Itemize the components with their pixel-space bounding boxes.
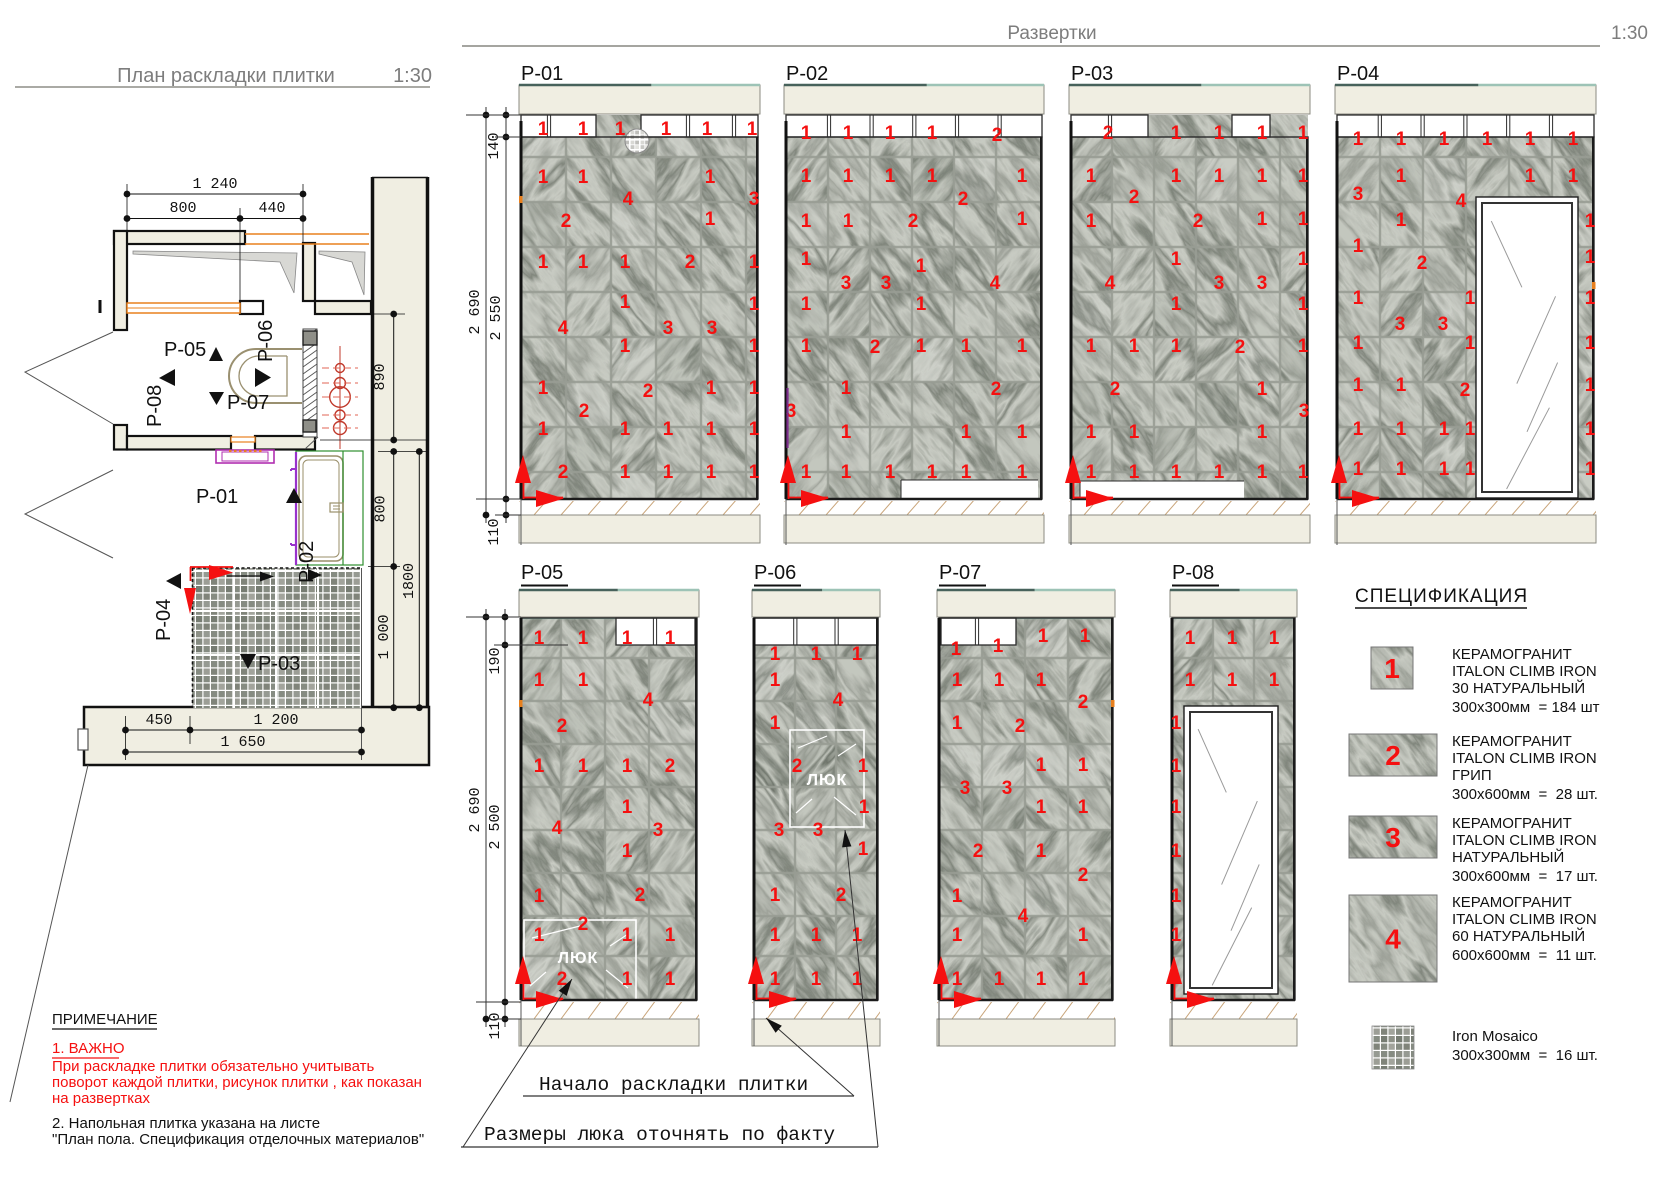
svg-text:60 НАТУРАЛЬНЫЙ: 60 НАТУРАЛЬНЫЙ [1452,927,1585,945]
svg-text:1: 1 [801,294,812,315]
svg-text:КЕРАМОГРАНИТ: КЕРАМОГРАНИТ [1452,894,1572,911]
svg-text:1: 1 [1465,419,1476,440]
svg-text:P-03: P-03 [258,653,300,675]
svg-text:1: 1 [1171,756,1182,777]
svg-text:1: 1 [749,419,760,440]
svg-text:890: 890 [372,363,389,390]
svg-text:Размеры люка оточнять по факту: Размеры люка оточнять по факту [484,1124,835,1146]
svg-text:1: 1 [749,336,760,357]
svg-text:2: 2 [973,841,984,862]
svg-text:2: 2 [1103,123,1114,144]
svg-text:2: 2 [836,885,847,906]
svg-text:2: 2 [1129,187,1140,208]
svg-text:1: 1 [622,841,633,862]
svg-text:1: 1 [1568,166,1579,187]
svg-text:2: 2 [1417,253,1428,274]
svg-text:1: 1 [665,969,676,990]
svg-text:1: 1 [1036,841,1047,862]
svg-text:1: 1 [952,969,963,990]
svg-text:Развертки: Развертки [1007,23,1096,44]
svg-text:1: 1 [1171,249,1182,270]
svg-text:1: 1 [1185,670,1196,691]
svg-text:1: 1 [1129,462,1140,483]
svg-text:1: 1 [1585,288,1596,309]
svg-text:КЕРАМОГРАНИТ: КЕРАМОГРАНИТ [1452,646,1572,663]
svg-text:1: 1 [1017,209,1028,230]
svg-text:4: 4 [623,189,634,210]
svg-text:1: 1 [1038,626,1049,647]
svg-text:1800: 1800 [401,563,418,599]
svg-text:1: 1 [841,378,852,399]
svg-text:ITALON CLIMB IRON: ITALON CLIMB IRON [1452,750,1597,767]
svg-text:1: 1 [578,628,589,649]
svg-text:3: 3 [1299,401,1310,422]
svg-text:1: 1 [961,462,972,483]
svg-text:1: 1 [622,925,633,946]
svg-text:2: 2 [908,211,919,232]
svg-text:2: 2 [579,401,590,422]
svg-text:КЕРАМОГРАНИТ: КЕРАМОГРАНИТ [1452,815,1572,832]
svg-text:P-07: P-07 [227,392,269,414]
svg-text:1: 1 [1017,166,1028,187]
svg-text:1: 1 [1086,336,1097,357]
svg-text:1: 1 [885,123,896,144]
svg-text:1: 1 [1525,129,1536,150]
svg-text:1: 1 [927,123,938,144]
svg-text:2: 2 [561,211,572,232]
svg-text:4: 4 [990,273,1001,294]
svg-text:30 НАТУРАЛЬНЫЙ: 30 НАТУРАЛЬНЫЙ [1452,679,1585,697]
svg-text:2: 2 [665,756,676,777]
svg-text:440: 440 [258,200,285,217]
svg-text:1: 1 [1465,288,1476,309]
svg-text:1: 1 [1396,210,1407,231]
svg-text:1: 1 [578,670,589,691]
svg-text:3: 3 [1385,822,1401,853]
svg-text:1: 1 [749,252,760,273]
svg-text:1: 1 [747,119,758,140]
svg-text:1: 1 [1171,841,1182,862]
svg-text:1: 1 [1171,713,1182,734]
svg-text:1: 1 [1298,166,1309,187]
svg-text:ITALON CLIMB IRON: ITALON CLIMB IRON [1452,832,1597,849]
svg-text:3: 3 [1257,273,1268,294]
svg-text:1: 1 [852,644,863,665]
svg-text:2: 2 [1015,716,1026,737]
svg-text:P-01: P-01 [196,486,238,508]
svg-text:1: 1 [1036,670,1047,691]
svg-text:P-01: P-01 [521,63,563,85]
svg-text:3: 3 [841,273,852,294]
svg-text:1: 1 [578,119,589,140]
svg-text:1: 1 [1080,626,1091,647]
svg-text:1: 1 [578,167,589,188]
svg-text:2: 2 [635,885,646,906]
svg-text:1: 1 [770,713,781,734]
svg-text:1: 1 [952,925,963,946]
svg-text:1: 1 [1353,375,1364,396]
svg-text:1: 1 [534,925,545,946]
svg-text:1: 1 [1086,422,1097,443]
svg-text:1: 1 [811,969,822,990]
svg-text:1: 1 [770,969,781,990]
svg-text:1: 1 [1585,333,1596,354]
svg-text:450: 450 [145,712,172,729]
svg-text:1: 1 [952,886,963,907]
svg-text:P-02: P-02 [786,63,828,85]
svg-text:2: 2 [558,462,569,483]
svg-text:110: 110 [486,518,503,545]
svg-text:ПРИМЕЧАНИЕ: ПРИМЕЧАНИЕ [52,1011,158,1028]
svg-text:3: 3 [1438,314,1449,335]
svg-text:600х600мм = 11 шт.: 600х600мм = 11 шт. [1452,947,1597,964]
svg-text:1: 1 [993,636,1004,657]
svg-text:ГРИП: ГРИП [1452,767,1492,784]
svg-text:1: 1 [801,249,812,270]
svg-text:1: 1 [1439,459,1450,480]
svg-text:300х300мм = 16 шт.: 300х300мм = 16 шт. [1452,1047,1598,1064]
svg-text:800: 800 [169,200,196,217]
svg-text:1: 1 [1396,129,1407,150]
svg-text:1: 1 [1585,459,1596,480]
svg-text:4: 4 [552,818,563,839]
svg-text:1: 1 [538,119,549,140]
svg-text:1: 1 [706,462,717,483]
svg-text:2: 2 [1078,692,1089,713]
svg-text:P-06: P-06 [754,562,796,584]
svg-text:КЕРАМОГРАНИТ: КЕРАМОГРАНИТ [1452,733,1572,750]
svg-text:1: 1 [770,670,781,691]
svg-text:1: 1 [1078,797,1089,818]
svg-text:1: 1 [749,378,760,399]
svg-text:"План пола. Спецификация отдел: "План пола. Спецификация отделочных мате… [52,1131,424,1148]
svg-text:2: 2 [1235,337,1246,358]
svg-text:1: 1 [706,419,717,440]
svg-text:2: 2 [578,914,589,935]
svg-text:1: 1 [1171,886,1182,907]
svg-text:1: 1 [885,166,896,187]
svg-text:3: 3 [1002,778,1013,799]
svg-text:1: 1 [951,639,962,660]
svg-text:P-06: P-06 [255,320,277,362]
svg-text:2: 2 [991,379,1002,400]
svg-text:1: 1 [1353,288,1364,309]
svg-text:1: 1 [1129,422,1140,443]
svg-text:1: 1 [811,925,822,946]
svg-text:P-04: P-04 [1337,63,1379,85]
svg-text:1: 1 [859,797,870,818]
svg-text:1: 1 [622,797,633,818]
svg-text:3: 3 [774,820,785,841]
svg-text:1: 1 [1214,123,1225,144]
svg-text:1:30: 1:30 [393,65,432,87]
svg-text:3: 3 [881,273,892,294]
svg-text:1: 1 [858,839,869,860]
svg-text:1: 1 [1396,375,1407,396]
svg-text:1: 1 [622,628,633,649]
svg-text:2. Напольная плитка указана на: 2. Напольная плитка указана на листе [52,1115,320,1132]
svg-text:ЛЮК: ЛЮК [558,950,599,967]
svg-text:4: 4 [1105,273,1116,294]
svg-text:1: 1 [843,211,854,232]
svg-text:ITALON CLIMB IRON: ITALON CLIMB IRON [1452,911,1597,928]
svg-text:1: 1 [705,167,716,188]
svg-text:1: 1 [811,644,822,665]
svg-text:1: 1 [841,422,852,443]
svg-text:3: 3 [1214,273,1225,294]
svg-text:P-07: P-07 [939,562,981,584]
svg-text:1: 1 [927,462,938,483]
svg-text:1: 1 [661,119,672,140]
svg-text:1 200: 1 200 [253,712,298,729]
svg-text:1: 1 [1036,797,1047,818]
svg-text:300х600мм = 28 шт.: 300х600мм = 28 шт. [1452,786,1598,803]
svg-text:1: 1 [1353,419,1364,440]
svg-text:1: 1 [916,336,927,357]
svg-text:1: 1 [801,123,812,144]
svg-text:1: 1 [1017,336,1028,357]
svg-text:1: 1 [1465,333,1476,354]
svg-text:1: 1 [1214,462,1225,483]
svg-text:1: 1 [1214,166,1225,187]
svg-text:1: 1 [1036,755,1047,776]
svg-text:1: 1 [1298,462,1309,483]
svg-text:4: 4 [1018,906,1029,927]
svg-text:2 550: 2 550 [488,295,505,340]
svg-text:2: 2 [557,716,568,737]
svg-text:1: 1 [1396,166,1407,187]
svg-text:1: 1 [1078,925,1089,946]
svg-text:1: 1 [801,211,812,232]
svg-text:1: 1 [885,462,896,483]
svg-text:1: 1 [1353,129,1364,150]
svg-text:1: 1 [916,294,927,315]
svg-text:3: 3 [1395,314,1406,335]
svg-text:1: 1 [538,378,549,399]
svg-text:1: 1 [1439,129,1450,150]
svg-text:1: 1 [1585,211,1596,232]
svg-text:1: 1 [1298,249,1309,270]
svg-text:1: 1 [916,256,927,277]
svg-text:1: 1 [749,462,760,483]
svg-text:1: 1 [770,885,781,906]
svg-text:2: 2 [992,125,1003,146]
svg-text:1: 1 [1017,422,1028,443]
svg-text:1: 1 [706,378,717,399]
svg-text:P-05: P-05 [164,339,206,361]
svg-text:1: 1 [1482,129,1493,150]
svg-text:1: 1 [1036,969,1047,990]
svg-text:2 690: 2 690 [467,787,484,832]
svg-text:НАТУРАЛЬНЫЙ: НАТУРАЛЬНЫЙ [1452,848,1564,866]
svg-text:1: 1 [620,252,631,273]
svg-text:4: 4 [643,690,654,711]
svg-text:1: 1 [1298,209,1309,230]
svg-text:P-02: P-02 [296,541,318,583]
svg-text:При раскладке плитки обязатель: При раскладке плитки обязательно учитыва… [52,1058,374,1075]
svg-text:1: 1 [538,419,549,440]
svg-text:1: 1 [622,969,633,990]
svg-text:Начало раскладки плитки: Начало раскладки плитки [539,1074,808,1096]
svg-text:1: 1 [620,419,631,440]
svg-text:1: 1 [1078,969,1089,990]
svg-text:1: 1 [961,336,972,357]
svg-text:Iron Mosaico: Iron Mosaico [1452,1028,1538,1045]
svg-text:1: 1 [1171,925,1182,946]
svg-text:1: 1 [620,462,631,483]
svg-text:План раскладки плитки: План раскладки плитки [117,65,335,87]
svg-text:1: 1 [858,756,869,777]
svg-text:2: 2 [1460,380,1471,401]
svg-text:1: 1 [1298,123,1309,144]
svg-text:1: 1 [1384,653,1400,684]
svg-text:1: 1 [665,925,676,946]
svg-text:800: 800 [373,495,390,522]
svg-text:1: 1 [952,670,963,691]
svg-text:1: 1 [801,462,812,483]
svg-text:1: 1 [1017,462,1028,483]
svg-text:1: 1 [1129,336,1140,357]
svg-text:1: 1 [534,756,545,777]
svg-text:3: 3 [960,778,971,799]
svg-text:1. ВАЖНО: 1. ВАЖНО [52,1040,125,1057]
svg-text:1: 1 [1171,336,1182,357]
svg-text:ITALON CLIMB IRON: ITALON CLIMB IRON [1452,663,1597,680]
svg-text:300х300мм = 184 шт: 300х300мм = 184 шт [1452,699,1600,716]
svg-text:1: 1 [534,670,545,691]
svg-text:3: 3 [653,820,664,841]
svg-text:1: 1 [1257,422,1268,443]
svg-text:2: 2 [1078,865,1089,886]
svg-text:1: 1 [1086,211,1097,232]
svg-text:1: 1 [1568,129,1579,150]
svg-text:1: 1 [1227,628,1238,649]
svg-text:1: 1 [1171,462,1182,483]
svg-text:1: 1 [770,644,781,665]
svg-text:2: 2 [870,337,881,358]
svg-text:1: 1 [841,462,852,483]
svg-text:1: 1 [1298,336,1309,357]
svg-text:1: 1 [749,294,760,315]
svg-text:1: 1 [1171,123,1182,144]
svg-text:2: 2 [685,252,696,273]
svg-text:2: 2 [643,381,654,402]
svg-text:1: 1 [1257,166,1268,187]
svg-text:1: 1 [1257,123,1268,144]
svg-text:1: 1 [620,292,631,313]
svg-text:1: 1 [1171,166,1182,187]
svg-text:1: 1 [1257,379,1268,400]
svg-text:1: 1 [1353,333,1364,354]
svg-text:P-04: P-04 [153,599,175,641]
svg-text:1: 1 [705,209,716,230]
svg-text:1: 1 [994,969,1005,990]
svg-text:1: 1 [665,628,676,649]
svg-text:2: 2 [792,756,803,777]
svg-text:3: 3 [749,189,760,210]
svg-text:1 650: 1 650 [220,734,265,751]
svg-text:2: 2 [1193,211,1204,232]
svg-text:2 690: 2 690 [467,289,484,334]
svg-text:1: 1 [1227,670,1238,691]
svg-text:1: 1 [1257,209,1268,230]
svg-text:ЛЮК: ЛЮК [807,772,848,789]
svg-text:1 240: 1 240 [192,176,237,193]
svg-text:2: 2 [958,189,969,210]
svg-text:P-03: P-03 [1071,63,1113,85]
svg-text:1: 1 [961,422,972,443]
svg-text:1: 1 [663,419,674,440]
svg-text:190: 190 [487,647,504,674]
svg-text:1: 1 [1396,459,1407,480]
svg-text:1: 1 [1525,166,1536,187]
svg-text:1: 1 [534,628,545,649]
svg-text:1: 1 [843,123,854,144]
svg-text:2: 2 [1385,740,1401,771]
svg-text:3: 3 [663,318,674,339]
svg-text:1: 1 [1078,755,1089,776]
svg-text:300х600мм = 17 шт.: 300х600мм = 17 шт. [1452,868,1598,885]
svg-text:1: 1 [1171,797,1182,818]
svg-text:P-08: P-08 [144,385,166,427]
svg-text:1: 1 [1185,628,1196,649]
svg-text:1: 1 [663,462,674,483]
svg-text:1: 1 [615,119,626,140]
svg-text:1: 1 [1585,375,1596,396]
svg-text:1: 1 [801,336,812,357]
svg-text:3: 3 [707,318,718,339]
svg-text:1: 1 [994,670,1005,691]
svg-text:1: 1 [843,166,854,187]
svg-text:2: 2 [1110,379,1121,400]
svg-text:1: 1 [1439,419,1450,440]
svg-text:1: 1 [620,336,631,357]
svg-text:1: 1 [801,166,812,187]
svg-text:1: 1 [1171,294,1182,315]
svg-text:1: 1 [1086,166,1097,187]
svg-text:2 500: 2 500 [487,804,504,849]
svg-text:1: 1 [534,886,545,907]
svg-text:1: 1 [1465,459,1476,480]
svg-text:4: 4 [558,318,569,339]
svg-text:1: 1 [1269,628,1280,649]
svg-text:4: 4 [1385,924,1401,955]
svg-text:1: 1 [1585,419,1596,440]
svg-text:1: 1 [952,713,963,734]
svg-text:1: 1 [1257,462,1268,483]
svg-text:P-08: P-08 [1172,562,1214,584]
svg-text:1: 1 [1353,459,1364,480]
svg-text:1: 1 [1086,462,1097,483]
svg-text:4: 4 [833,690,844,711]
svg-text:1: 1 [1396,419,1407,440]
svg-text:1: 1 [927,166,938,187]
svg-text:3: 3 [1353,184,1364,205]
svg-text:1: 1 [538,252,549,273]
svg-text:1 000: 1 000 [376,614,393,659]
svg-text:1: 1 [578,756,589,777]
svg-text:1: 1 [622,756,633,777]
svg-text:1: 1 [1298,294,1309,315]
svg-text:СПЕЦИФИКАЦИЯ: СПЕЦИФИКАЦИЯ [1355,586,1528,607]
svg-text:1: 1 [770,925,781,946]
svg-text:1: 1 [1269,670,1280,691]
svg-text:110: 110 [487,1012,504,1039]
svg-text:1: 1 [578,252,589,273]
svg-text:3: 3 [813,820,824,841]
svg-text:1: 1 [702,119,713,140]
svg-text:1: 1 [1585,247,1596,268]
